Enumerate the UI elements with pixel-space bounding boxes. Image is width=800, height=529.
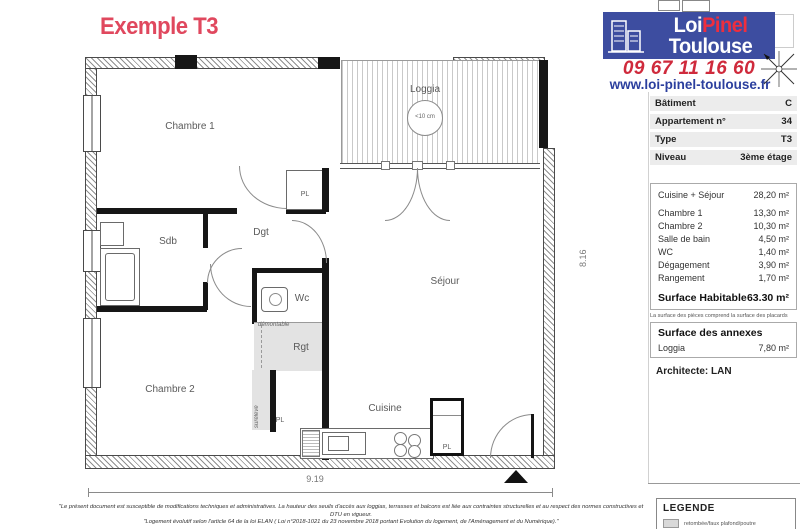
window-chambre2	[83, 318, 101, 388]
wall-right	[543, 148, 555, 468]
room-label-sejour: Séjour	[415, 276, 475, 287]
sureleve-label: surélevé	[254, 376, 260, 428]
closet-label-pl1: PL	[288, 191, 322, 198]
wall-loggia-right	[538, 60, 548, 148]
info-value: 3ème étage	[740, 152, 792, 163]
annexe-row: Loggia 7,80 m²	[658, 342, 789, 355]
door-arc-chambre2	[210, 264, 251, 307]
bathtub	[100, 248, 140, 306]
window-chambre1	[83, 95, 101, 152]
surface-name: Chambre 1	[658, 207, 703, 220]
room-label-sdb: Sdb	[150, 236, 186, 247]
annexe-area: 7,80 m²	[758, 342, 789, 355]
wall-top-pier	[175, 55, 197, 69]
room-label-loggia: Loggia	[395, 84, 455, 95]
brand-name-loi: Loi	[674, 14, 703, 37]
info-label: Bâtiment	[655, 98, 696, 109]
hob-burner	[408, 445, 421, 458]
brand-name: LoiPinel Toulouse	[649, 15, 772, 57]
rangement-dashed-line	[261, 325, 262, 368]
legend-item-label: retombée/faux plafond/poutre	[684, 521, 756, 527]
website-link[interactable]: www.loi-pinel-toulouse.fr	[596, 77, 784, 92]
wall-wc-top	[252, 268, 324, 273]
info-label: Appartement n°	[655, 116, 726, 127]
dimension-tick-right	[552, 488, 553, 497]
surface-row: Salle de bain 4,50 m²	[658, 233, 789, 246]
info-row-batiment: Bâtiment C	[650, 96, 797, 111]
surface-area: 1,70 m²	[758, 272, 789, 285]
surface-area: 1,40 m²	[758, 246, 789, 259]
sink-basin	[328, 436, 349, 451]
wall-chambre2-top	[97, 306, 207, 312]
surface-area: 13,30 m²	[753, 207, 789, 220]
disclaimer-line1: "Le présent document est susceptible de …	[55, 504, 647, 519]
legend-swatch	[663, 519, 679, 528]
building-icon	[606, 15, 646, 57]
door-arc-chambre1	[239, 166, 287, 209]
toilet-icon	[261, 287, 288, 312]
surface-habitable-label: Surface Habitable	[658, 292, 747, 304]
legend-divider	[648, 483, 800, 484]
closet-label-pl3: PL	[434, 444, 460, 451]
surface-area: 10,30 m²	[753, 220, 789, 233]
surfaces-note: La surface des pièces comprend la surfac…	[650, 313, 798, 319]
wall-center-vert-a	[322, 168, 329, 212]
entry-door-arc	[490, 414, 533, 458]
sidebar-divider	[648, 92, 649, 483]
floorplan-sheet: Exemple T3 Loggia <10 cm PL Wc démontabl…	[0, 0, 800, 529]
loggia-threshold-note: <10 cm	[408, 114, 442, 120]
bay-door-arc-left	[385, 168, 418, 221]
hob-burner	[394, 444, 407, 457]
brand-name-pinel: Pinel	[702, 14, 747, 37]
surface-name: Rangement	[658, 272, 705, 285]
kitchen-sink	[322, 432, 366, 455]
info-label: Niveau	[655, 152, 686, 163]
info-label: Type	[655, 134, 676, 145]
surface-area: 3,90 m²	[758, 259, 789, 272]
room-label-wc: Wc	[290, 293, 314, 304]
disclaimer: "Le présent document est susceptible de …	[55, 504, 647, 527]
demontable-label: démontable	[258, 322, 289, 328]
surface-name: Cuisine + Séjour	[658, 189, 724, 202]
surface-row: Chambre 1 13,30 m²	[658, 207, 789, 220]
room-label-dgt: Dgt	[244, 227, 278, 238]
legend-panel: LEGENDE retombée/faux plafond/poutre	[656, 498, 796, 529]
wall-top-pier-2	[318, 57, 340, 69]
surface-name: WC	[658, 246, 673, 259]
surface-name: Chambre 2	[658, 220, 703, 233]
wall-wc-left	[252, 268, 257, 324]
surface-habitable-value: 63.30 m²	[747, 292, 789, 304]
surface-habitable-row: Surface Habitable 63.30 m²	[658, 292, 789, 304]
toilet-bowl	[269, 293, 282, 306]
room-label-chambre2: Chambre 2	[125, 384, 215, 395]
compass-icon	[760, 50, 798, 88]
brand-name-toulouse: Toulouse	[649, 36, 772, 57]
entry-door-leaf	[531, 414, 534, 458]
info-value: T3	[781, 134, 792, 145]
brand-logo: LoiPinel Toulouse	[603, 12, 775, 59]
legend-title: LEGENDE	[663, 503, 789, 514]
dimension-line-bottom	[88, 492, 553, 493]
surface-name: Salle de bain	[658, 233, 710, 246]
dimension-height: 8.16	[578, 233, 588, 283]
annexes-panel: Surface des annexes Loggia 7,80 m²	[650, 322, 797, 358]
architect-credit: Architecte: LAN	[656, 366, 732, 377]
loggia-threshold-circle: <10 cm	[407, 100, 443, 136]
dimension-width: 9.19	[285, 474, 345, 484]
surface-name: Dégagement	[658, 259, 710, 272]
surfaces-panel: Cuisine + Séjour 28,20 m² Chambre 1 13,3…	[650, 183, 797, 310]
surface-row: Chambre 2 10,30 m²	[658, 220, 789, 233]
bay-door-arc-right	[417, 168, 450, 221]
dimension-tick-left	[88, 488, 89, 497]
annexe-name: Loggia	[658, 342, 685, 355]
page-title: Exemple T3	[100, 13, 218, 41]
kitchen-cabinet	[302, 430, 320, 457]
bathtub-inner	[105, 253, 135, 301]
window-sdb	[83, 230, 101, 272]
door-arc-degagement	[292, 220, 327, 263]
surface-row: Rangement 1,70 m²	[658, 272, 789, 285]
info-row-niveau: Niveau 3ème étage	[650, 150, 797, 165]
wardrobe-shelf	[433, 415, 461, 416]
info-value: 34	[781, 116, 792, 127]
wall-top	[85, 57, 330, 69]
washbasin	[100, 222, 124, 246]
info-row-type: Type T3	[650, 132, 797, 147]
info-row-appartement: Appartement n° 34	[650, 114, 797, 129]
surface-row: WC 1,40 m²	[658, 246, 789, 259]
siteplan-fragment	[658, 0, 680, 11]
legend-item: retombée/faux plafond/poutre	[663, 519, 789, 528]
wall-sdb-a	[203, 214, 208, 248]
surface-area: 28,20 m²	[753, 189, 789, 202]
closet-chambre1	[286, 170, 326, 210]
room-label-cuisine: Cuisine	[358, 403, 412, 414]
disclaimer-line2: "Logement évolutif selon l'article 64 de…	[55, 519, 647, 527]
wall-chambre1-a	[97, 208, 237, 214]
info-value: C	[785, 98, 792, 109]
room-label-chambre1: Chambre 1	[145, 121, 235, 132]
surface-area: 4,50 m²	[758, 233, 789, 246]
north-arrow-icon	[504, 470, 528, 483]
annexes-title: Surface des annexes	[658, 327, 789, 339]
closet-label-pl2: PL	[270, 417, 290, 424]
surface-row: Dégagement 3,90 m²	[658, 259, 789, 272]
room-label-rgt: Rgt	[288, 342, 314, 353]
surface-row: Cuisine + Séjour 28,20 m²	[658, 189, 789, 202]
siteplan-fragment	[682, 0, 710, 12]
